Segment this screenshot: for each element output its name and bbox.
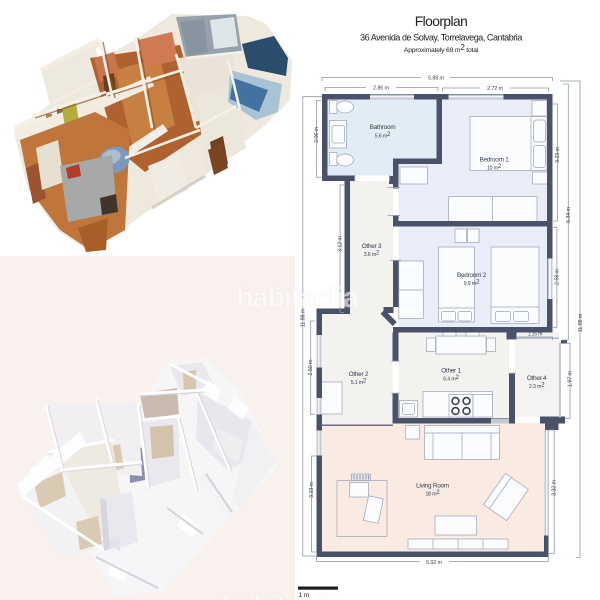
- svg-text:2.06 m: 2.06 m: [314, 126, 320, 142]
- svg-text:Floorplan: Floorplan: [415, 14, 468, 29]
- svg-text:5.92 m: 5.92 m: [426, 560, 442, 566]
- svg-text:Other 4: Other 4: [527, 375, 547, 382]
- svg-text:2.72 m: 2.72 m: [487, 86, 503, 92]
- svg-text:Bathroom: Bathroom: [370, 124, 396, 131]
- svg-text:habitaclia: habitaclia: [236, 282, 360, 314]
- svg-text:habitaclia: habitaclia: [222, 590, 346, 600]
- svg-text:2.58 m: 2.58 m: [554, 268, 560, 284]
- svg-text:3.12 m: 3.12 m: [338, 235, 344, 251]
- svg-text:36 Avenida de Solvay, Torrelav: 36 Avenida de Solvay, Torrelavega, Canta…: [360, 33, 522, 43]
- svg-text:5.88 m: 5.88 m: [428, 76, 444, 82]
- svg-text:2.50 m: 2.50 m: [308, 359, 314, 375]
- svg-text:Other 2: Other 2: [349, 371, 369, 378]
- svg-text:3.23 m: 3.23 m: [555, 146, 561, 162]
- svg-text:2.86 m: 2.86 m: [373, 86, 389, 92]
- svg-text:6.34 m: 6.34 m: [566, 206, 572, 222]
- svg-text:1.97 m: 1.97 m: [568, 370, 574, 386]
- svg-text:11.88 m: 11.88 m: [578, 313, 584, 332]
- svg-text:Living Room: Living Room: [416, 482, 449, 489]
- svg-text:1.15 m: 1.15 m: [528, 332, 542, 338]
- svg-text:3.32 m: 3.32 m: [552, 479, 558, 495]
- svg-text:Bedroom 2: Bedroom 2: [457, 272, 487, 279]
- svg-text:3.23 m: 3.23 m: [309, 481, 315, 497]
- svg-text:Bedroom 1: Bedroom 1: [479, 156, 509, 163]
- svg-text:Other 1: Other 1: [441, 367, 461, 374]
- svg-text:Other 3: Other 3: [362, 243, 382, 250]
